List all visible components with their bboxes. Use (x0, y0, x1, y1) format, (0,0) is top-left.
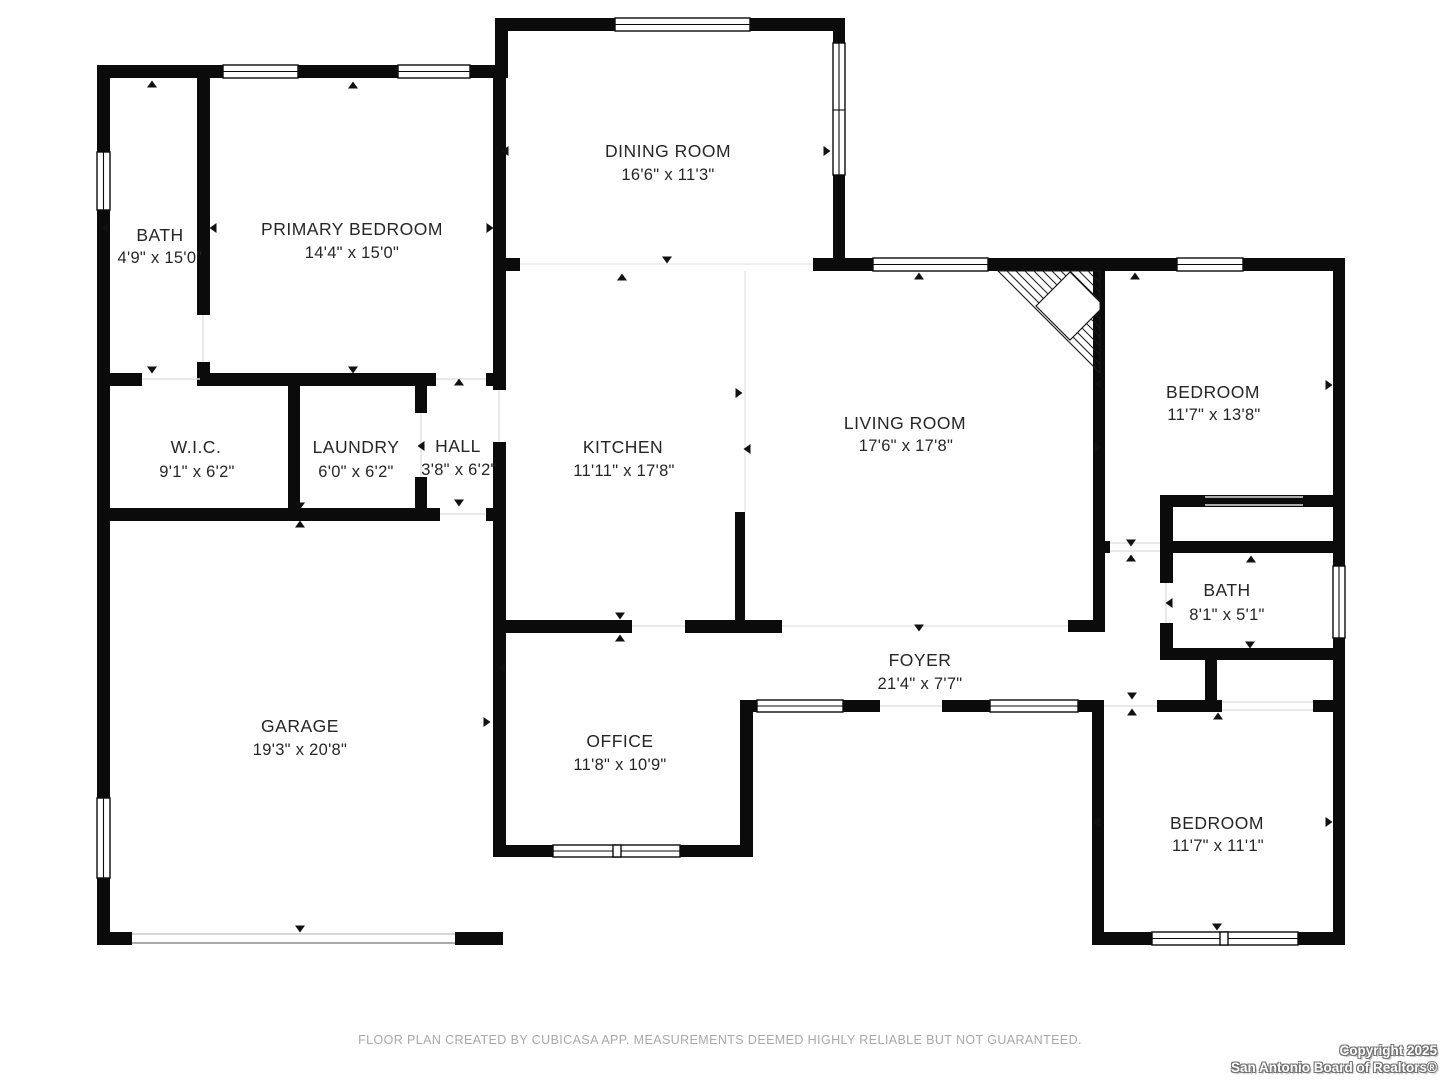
room-dims-dining-room: 16'6" x 11'3" (621, 166, 714, 184)
copyright-line2: San Antonio Board of Realtors® (1231, 1059, 1437, 1076)
room-label-bath-2: BATH (1203, 580, 1250, 600)
room-label-foyer: FOYER (889, 650, 952, 670)
room-label-dining-room: DINING ROOM (605, 141, 731, 161)
window (553, 845, 680, 857)
copyright-notice: Copyright 2025 San Antonio Board of Real… (1231, 1042, 1437, 1076)
room-label-laundry: LAUNDRY (313, 437, 400, 457)
room-dims-wic: 9'1" x 6'2" (159, 463, 234, 481)
room-dims-office: 11'8" x 10'9" (573, 756, 666, 774)
room-dims-bath-1: 4'9" x 15'0" (118, 249, 203, 267)
window (223, 65, 298, 78)
room-dims-living-room: 17'6" x 17'8" (859, 437, 953, 455)
fireplace-icon (998, 271, 1104, 373)
room-label-living-room: LIVING ROOM (844, 413, 966, 433)
window (1152, 932, 1298, 945)
room-dims-hall: 3'8" x 6'2" (421, 461, 496, 479)
window (1177, 258, 1243, 271)
room-label-bedroom-right: BEDROOM (1166, 382, 1260, 402)
window (615, 18, 750, 31)
room-label-kitchen: KITCHEN (583, 437, 663, 457)
room-dims-laundry: 6'0" x 6'2" (318, 463, 393, 481)
room-label-office: OFFICE (586, 731, 653, 751)
room-dims-bath-2: 8'1" x 5'1" (1189, 606, 1264, 624)
room-label-bedroom-bottom: BEDROOM (1170, 813, 1264, 833)
room-label-hall: HALL (435, 436, 481, 456)
copyright-line1: Copyright 2025 (1231, 1042, 1437, 1059)
window (873, 258, 988, 271)
room-dims-garage: 19'3" x 20'8" (253, 741, 347, 759)
room-dims-foyer: 21'4" x 7'7" (878, 675, 963, 693)
room-label-primary-bedroom: PRIMARY BEDROOM (261, 219, 443, 239)
room-label-garage: GARAGE (261, 716, 339, 736)
window (833, 43, 845, 175)
room-dims-kitchen: 11'11" x 17'8" (573, 462, 674, 480)
garage-door (132, 932, 455, 945)
window (757, 700, 843, 712)
window (97, 152, 110, 210)
window (398, 65, 470, 78)
door-markers (102, 81, 1333, 933)
window (990, 700, 1078, 712)
room-dims-bedroom-bottom: 11'7" x 11'1" (1172, 837, 1264, 855)
floor-plan-drawing: BATH 4'9" x 15'0" PRIMARY BEDROOM 14'4" … (0, 0, 1440, 1080)
room-label-wic: W.I.C. (171, 437, 222, 457)
footer-disclaimer: FLOOR PLAN CREATED BY CUBICASA APP. MEAS… (0, 1033, 1440, 1047)
window (97, 798, 110, 878)
floor-plan: BATH 4'9" x 15'0" PRIMARY BEDROOM 14'4" … (0, 0, 1440, 1080)
window (1333, 566, 1345, 638)
room-label-bath-1: BATH (136, 225, 183, 245)
room-dims-primary-bedroom: 14'4" x 15'0" (305, 244, 399, 262)
room-dims-bedroom-right: 11'7" x 13'8" (1167, 406, 1260, 424)
